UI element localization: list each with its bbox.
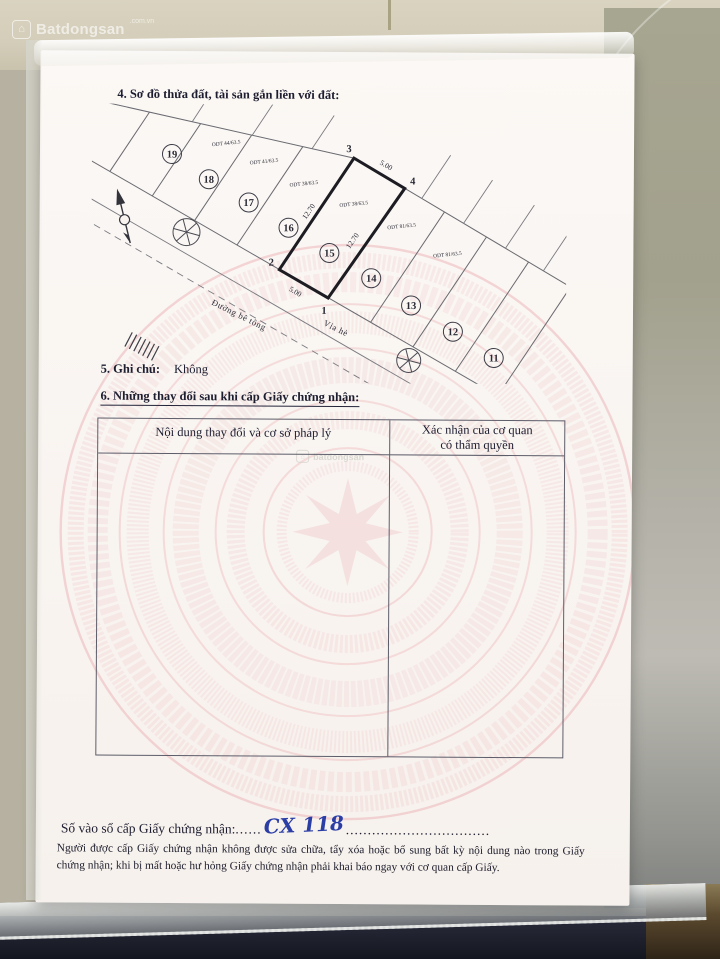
serial-label: Số vào sổ cấp Giấy chứng nhận: bbox=[61, 820, 236, 836]
section5-label: 5. Ghi chú: bbox=[101, 362, 160, 376]
changes-table: Nội dung thay đổi và cơ sở pháp lý Xác n… bbox=[95, 418, 565, 759]
tree-icon bbox=[397, 348, 421, 372]
svg-text:1: 1 bbox=[321, 306, 326, 317]
footer-warning-note: Người được cấp Giấy chứng nhận không đượ… bbox=[57, 840, 585, 877]
svg-text:14: 14 bbox=[366, 274, 377, 285]
svg-text:19: 19 bbox=[167, 150, 178, 161]
section6-title: 6. Những thay đổi sau khi cấp Giấy chứng… bbox=[100, 389, 359, 408]
tile-grout-line bbox=[388, 0, 391, 30]
svg-text:5.00: 5.00 bbox=[378, 158, 394, 173]
table-header-confirmation: Xác nhận của cơ quan có thẩm quyền bbox=[398, 422, 556, 453]
svg-text:ODT 81/63.5: ODT 81/63.5 bbox=[433, 251, 462, 260]
certificate-page: ⌂ batdongsan 4. Sơ đồ thửa đất, tài sản … bbox=[35, 50, 634, 906]
dotted-leader: ................................. bbox=[346, 822, 490, 838]
svg-text:ODT 38/63.5: ODT 38/63.5 bbox=[289, 180, 318, 189]
serial-number-line: Số vào sổ cấp Giấy chứng nhận:......CX 1… bbox=[61, 813, 490, 840]
svg-text:11: 11 bbox=[489, 354, 499, 365]
svg-text:ODT 38/63.5: ODT 38/63.5 bbox=[339, 200, 368, 209]
svg-text:3: 3 bbox=[346, 144, 351, 155]
svg-text:ODT 81/63.5: ODT 81/63.5 bbox=[387, 222, 416, 231]
brand-house-icon: ⌂ bbox=[12, 20, 31, 39]
svg-text:17: 17 bbox=[243, 198, 254, 209]
svg-text:13: 13 bbox=[406, 301, 417, 312]
adjacent-block-ticks bbox=[191, 104, 567, 272]
road-label: Đường bê tông bbox=[210, 297, 268, 332]
table-header-underline bbox=[98, 453, 564, 457]
table-column-divider bbox=[387, 420, 390, 756]
svg-text:5.00: 5.00 bbox=[287, 284, 303, 299]
svg-text:ODT 44/63.5: ODT 44/63.5 bbox=[212, 139, 241, 148]
section4-title: 4. Sơ đồ thửa đất, tài sản gắn liền với … bbox=[117, 87, 339, 103]
svg-text:4: 4 bbox=[410, 176, 416, 187]
svg-text:16: 16 bbox=[283, 223, 294, 234]
table-header-content: Nội dung thay đổi và cơ sở pháp lý bbox=[108, 425, 378, 442]
serial-handwritten-value: CX 118 bbox=[263, 811, 344, 839]
plastic-sleeve-left-edge bbox=[26, 40, 42, 900]
dotted-leader: ...... bbox=[235, 821, 261, 836]
svg-text:18: 18 bbox=[204, 175, 215, 186]
svg-text:12: 12 bbox=[448, 327, 459, 338]
section5-note: 5. Ghi chú:Không bbox=[101, 362, 209, 378]
svg-text:12.70: 12.70 bbox=[344, 231, 361, 250]
brand-watermark: ⌂ Batdongsan .com.vn bbox=[12, 20, 154, 39]
tree-icon bbox=[173, 219, 200, 246]
brand-suffix: .com.vn bbox=[130, 18, 155, 25]
svg-text:ODT 41/63.5: ODT 41/63.5 bbox=[250, 158, 279, 167]
north-arrow-icon bbox=[112, 187, 135, 244]
hatch-symbol bbox=[125, 332, 159, 360]
svg-text:15: 15 bbox=[324, 249, 335, 260]
svg-text:2: 2 bbox=[269, 258, 274, 269]
brand-name: Batdongsan bbox=[36, 21, 125, 38]
section5-value: Không bbox=[174, 362, 208, 376]
cadastral-sketch: 1 2 3 4 5.00 5.00 12.70 12.70 19 18 17 1… bbox=[91, 104, 568, 385]
